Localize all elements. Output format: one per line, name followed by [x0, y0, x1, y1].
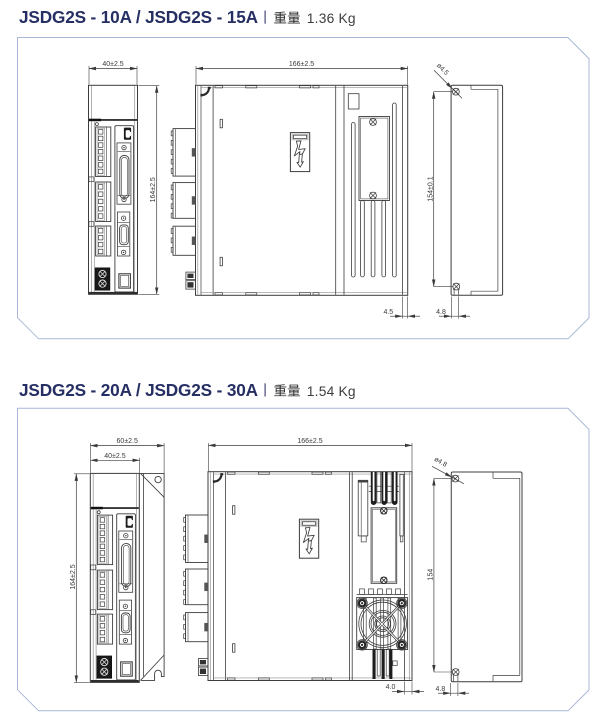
svg-text:166±2.5: 166±2.5 — [297, 438, 322, 445]
svg-text:ø4.8: ø4.8 — [433, 456, 448, 469]
svg-text:JSDG2S - 10A / JSDG2S - 15A: JSDG2S - 10A / JSDG2S - 15A — [19, 7, 258, 27]
svg-text:4.8: 4.8 — [436, 309, 446, 316]
svg-text:ø4.5: ø4.5 — [435, 62, 450, 77]
svg-text:4.8: 4.8 — [436, 686, 446, 693]
svg-text:164±2.5: 164±2.5 — [70, 564, 77, 589]
svg-text:JSDG2S - 20A / JSDG2S - 30A: JSDG2S - 20A / JSDG2S - 30A — [19, 380, 258, 400]
svg-text:60±2.5: 60±2.5 — [117, 438, 138, 445]
svg-text:40±2.5: 40±2.5 — [102, 61, 123, 68]
svg-text:166±2.5: 166±2.5 — [289, 61, 314, 68]
svg-text:1.54 Kg: 1.54 Kg — [307, 384, 356, 399]
svg-text:154±0.1: 154±0.1 — [427, 176, 434, 201]
svg-text:40±2.5: 40±2.5 — [104, 453, 125, 460]
svg-text:164±2.5: 164±2.5 — [150, 177, 157, 202]
svg-text:4.5: 4.5 — [383, 309, 393, 316]
svg-text:4.0: 4.0 — [386, 684, 396, 691]
svg-text:154: 154 — [428, 569, 435, 581]
svg-text:1.36 Kg: 1.36 Kg — [307, 11, 356, 26]
